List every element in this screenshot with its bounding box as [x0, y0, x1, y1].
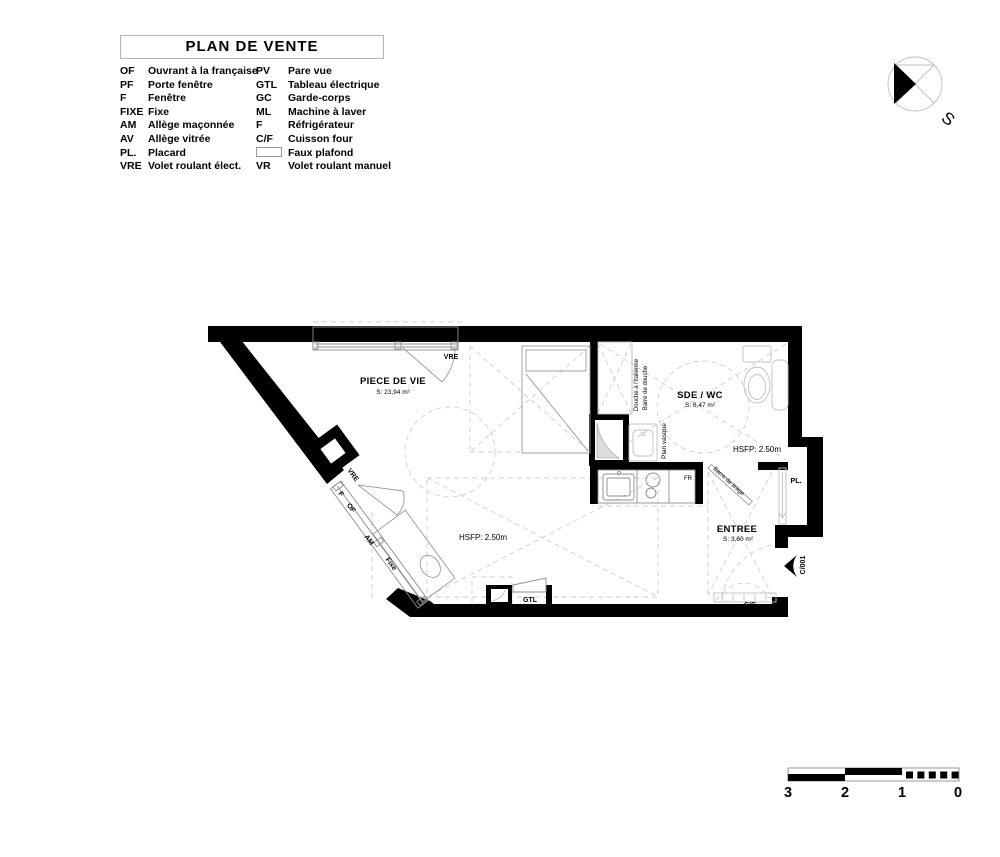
- entry-door-swing: [722, 543, 777, 598]
- scale-label: 3: [784, 785, 792, 801]
- towel-radiator: [772, 360, 788, 410]
- kitchen-sink: [603, 471, 634, 500]
- scale-label: 1: [898, 785, 906, 801]
- wall-right-upper: [788, 342, 802, 437]
- room-name-sde-wc: SDE / WC: [677, 390, 723, 401]
- scale-label: 0: [954, 785, 962, 801]
- entry-door-jamb: [775, 537, 788, 548]
- compass-south-label: S: [938, 108, 959, 130]
- desk: [373, 510, 455, 601]
- scale-label: 2: [841, 785, 849, 801]
- wall-kitchen-stub: [695, 462, 703, 504]
- bed: [522, 346, 590, 453]
- entry-arrow-icon: [784, 555, 797, 577]
- floor-plan-page: PLAN DE VENTE OFOuvrant à la françaisePV…: [0, 0, 1000, 857]
- window-label: OF: [423, 333, 433, 340]
- room-area-piece-de-vie: S: 23,94 m²: [376, 389, 410, 396]
- wall-bottom-right-stub: [772, 597, 788, 617]
- fridge-label: FR: [684, 476, 693, 482]
- window-diagonal: VRE F OF AM Fixe: [331, 467, 429, 608]
- plan-canvas: S: [0, 0, 1000, 857]
- closet-label: PL.: [791, 478, 802, 485]
- pl-closet-door: [779, 468, 786, 524]
- window-label: AM: [363, 534, 375, 547]
- vanity-label: Plan vasque: [661, 423, 668, 459]
- kitchen-counter: [598, 470, 695, 503]
- exterior-walls: [208, 326, 823, 617]
- gtl-column: [486, 578, 552, 605]
- window-label: Fixe: [350, 333, 364, 340]
- toilet: [743, 346, 771, 403]
- room-name-entree: ENTREE: [717, 524, 757, 535]
- shower-label: Douche à l'italienne: [634, 358, 640, 411]
- room-area-entree: S: 3,60 m²: [723, 536, 754, 543]
- window-label: VRE: [346, 467, 360, 483]
- kitchenette: FR: [598, 470, 695, 503]
- technical-duct: [589, 414, 629, 466]
- cc-label: C/C: [744, 602, 756, 609]
- wall-bottom: [424, 604, 788, 617]
- gtl-label: GTL: [523, 597, 538, 604]
- shower-bar-label: Barre de douche: [643, 365, 649, 410]
- room-name-piece-de-vie: PIECE DE VIE: [360, 376, 426, 387]
- wall-sde-south-east: [758, 462, 788, 470]
- window-label: F: [337, 491, 346, 499]
- wall-pl-bottom: [775, 525, 823, 537]
- window-label: OF: [345, 502, 357, 515]
- entry-door-ref: C/001: [800, 556, 807, 575]
- hsfp-entree: HSFP: 2.50m: [733, 445, 781, 454]
- wall-top: [208, 326, 802, 342]
- hsfp-living: HSFP: 2.50m: [459, 533, 507, 542]
- washbasin: [629, 424, 657, 461]
- pull-bar-label: Barre de tirage: [712, 466, 746, 497]
- chair: [416, 551, 445, 581]
- compass-icon: S: [888, 57, 958, 130]
- window-label: AM: [386, 329, 397, 336]
- compass-needle: [894, 63, 916, 104]
- room-area-sde-wc: S: 6,47 m²: [685, 402, 716, 409]
- cc-threshold: [714, 593, 776, 602]
- wall-step: [788, 437, 823, 447]
- scale-bar: 3 2 1 0: [784, 768, 962, 801]
- window-label: F: [320, 333, 325, 340]
- shutter-label: VRE: [444, 354, 459, 361]
- wall-right-lower: [807, 447, 823, 537]
